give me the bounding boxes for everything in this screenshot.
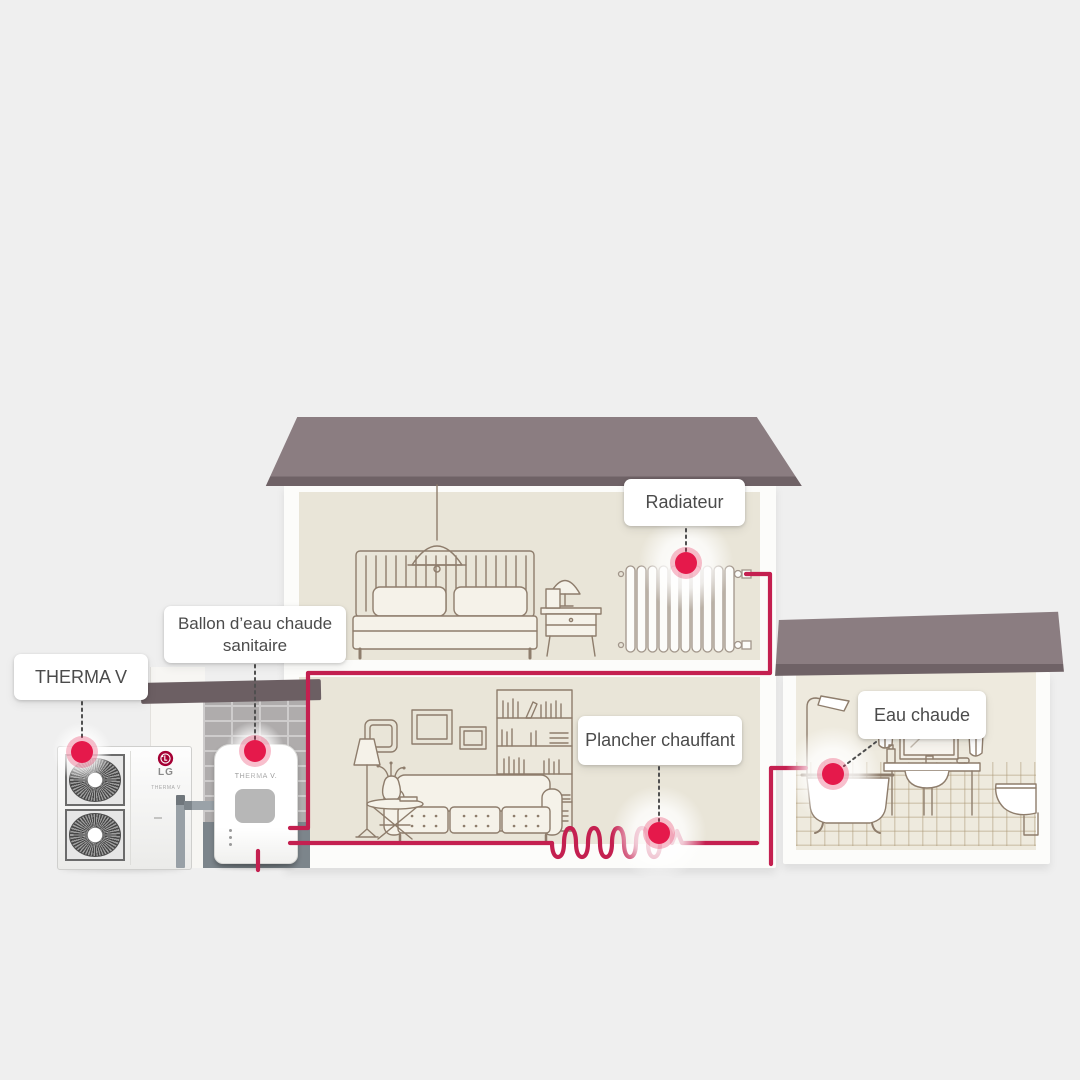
vanity-counter xyxy=(884,763,980,771)
lg-logo-icon xyxy=(157,750,174,767)
tank-indicator-dot xyxy=(229,836,232,839)
floor-lamp-icon xyxy=(354,739,380,765)
vase xyxy=(383,776,401,800)
callout-label: Ballon d’eau chaude sanitaire xyxy=(164,613,346,656)
bathroom-annex-roof xyxy=(773,609,1066,678)
pillow xyxy=(373,587,446,616)
hotspot-dot-therma-v[interactable] xyxy=(71,741,93,763)
fan-icon xyxy=(69,813,121,857)
nightstand xyxy=(541,608,601,614)
callout-ballon: Ballon d’eau chaude sanitaire xyxy=(164,606,346,663)
callout-label: THERMA V xyxy=(35,666,127,689)
photo-frame xyxy=(546,589,560,608)
unit-detail-line xyxy=(154,817,162,819)
fan-grille-bottom xyxy=(65,809,125,861)
mattress xyxy=(353,616,537,649)
pillow xyxy=(454,587,527,616)
main-house-roof xyxy=(262,417,804,486)
pendant-lamp-icon xyxy=(412,546,462,565)
utility-room-roof xyxy=(141,679,321,704)
callout-eau-chaude: Eau chaude xyxy=(858,691,986,739)
hotspot-dot-radiateur[interactable] xyxy=(675,552,697,574)
callout-label: Radiateur xyxy=(645,491,723,514)
tank-control-panel xyxy=(235,789,275,823)
callout-label: Eau chaude xyxy=(874,704,970,727)
hotspot-dot-eau-chaude[interactable] xyxy=(822,763,844,785)
tank-indicator-dot xyxy=(229,843,232,846)
sink-basin xyxy=(905,771,949,788)
callout-therma-v: THERMA V xyxy=(14,654,148,700)
lg-brand-text: LG xyxy=(148,767,184,778)
panel-divider xyxy=(130,751,131,865)
hotspot-dot-ballon[interactable] xyxy=(244,740,266,762)
shower-head-icon xyxy=(818,696,849,711)
hotspot-dot-plancher[interactable] xyxy=(648,822,670,844)
callout-plancher: Plancher chauffant xyxy=(578,716,742,765)
soap xyxy=(957,758,969,763)
tank-indicator-dot xyxy=(229,829,232,832)
callout-radiateur: Radiateur xyxy=(624,479,745,526)
outdoor-unit-model-text: THERMA V xyxy=(144,785,188,791)
callout-label: Plancher chauffant xyxy=(585,729,735,752)
lg-therma-v-infographic: { "diagram": { "hotspots": [ {"id": "the… xyxy=(0,0,1080,1080)
